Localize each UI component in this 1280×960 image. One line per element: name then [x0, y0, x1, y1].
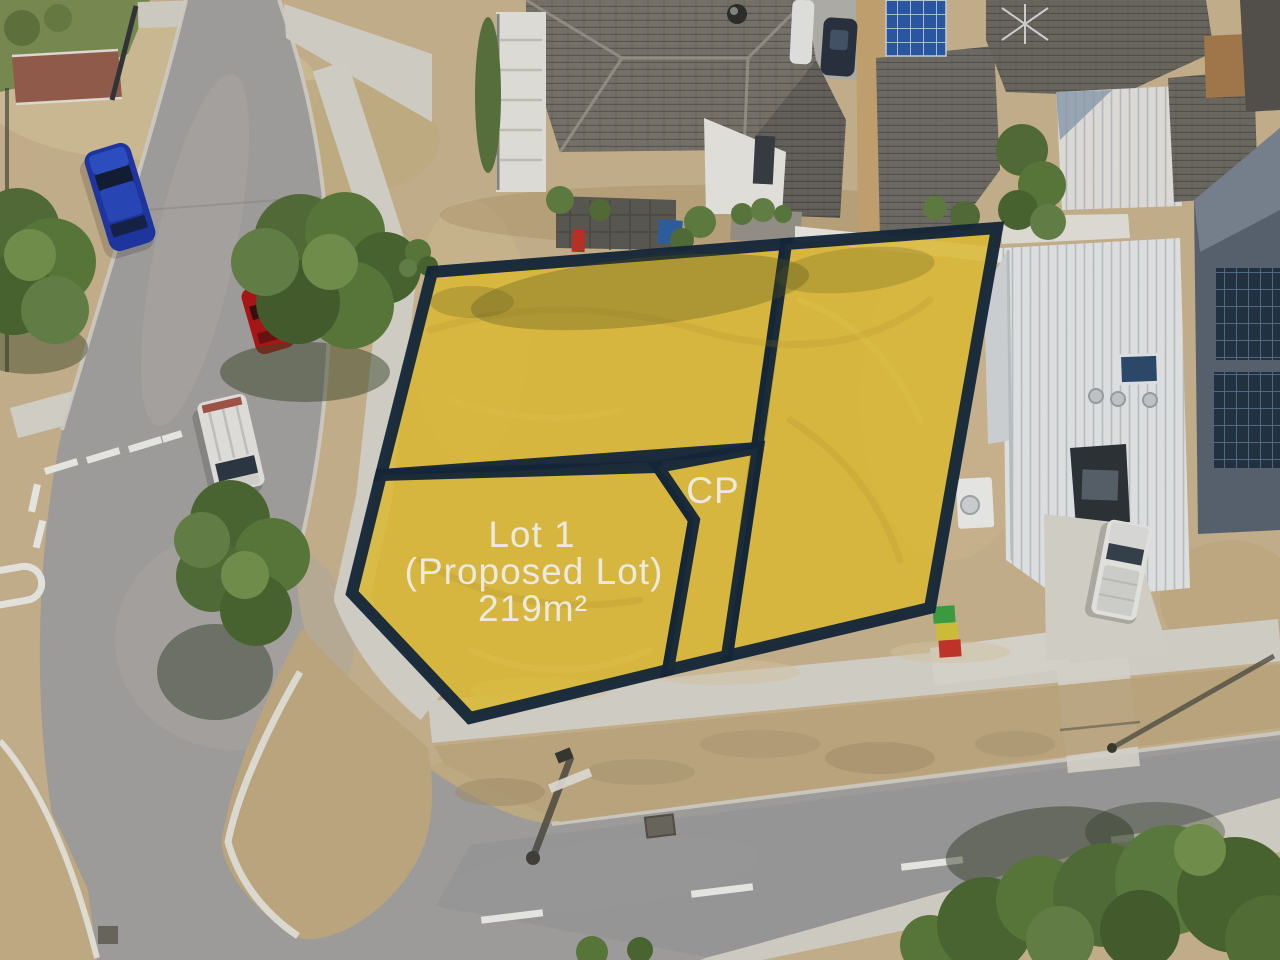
aerial-photo: Lot 1 (Proposed Lot) 219m² CP: [0, 0, 1280, 960]
screenshot-root: Lot 1 (Proposed Lot) 219m² CP: [0, 0, 1280, 960]
photo-grain: [0, 0, 1280, 960]
